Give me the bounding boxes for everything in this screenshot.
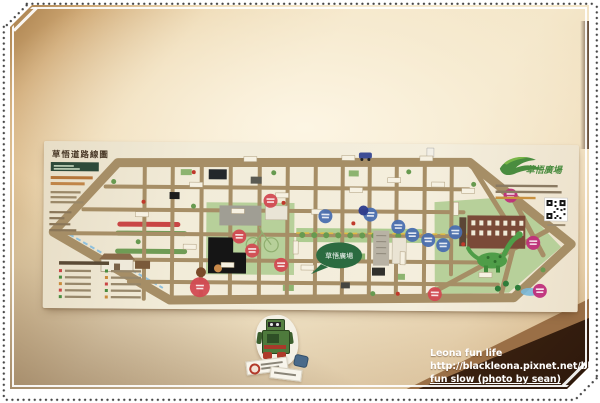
sticker-tag (269, 366, 302, 382)
poi-marker-red (263, 194, 277, 208)
wall-photo: 草悟廣場 草悟道路線圖 (10, 5, 589, 389)
robot-panel (267, 334, 279, 343)
poi-marker-blue (405, 228, 419, 242)
poi-marker-blue (436, 238, 450, 252)
poi-marker-blue (391, 220, 405, 234)
brand-name: 草悟廣場 (526, 165, 564, 176)
photo-mat: 草悟廣場 草悟道路線圖 (0, 0, 600, 403)
poi-marker-navy (358, 205, 368, 215)
map-title-block: 草悟道路線圖 (49, 149, 109, 232)
poi-marker-blue (448, 225, 462, 239)
map-title: 草悟道路線圖 (52, 149, 109, 160)
doorway-shadow (580, 21, 589, 149)
poi-marker-red (232, 229, 246, 243)
dotted-border-right (594, 4, 599, 379)
plaza-bubble-label: 草悟廣場 (325, 251, 353, 260)
robot-band (264, 345, 286, 349)
robot-sticker (244, 315, 316, 387)
poi-marker-magenta (526, 236, 540, 250)
dotted-border-left (1, 24, 6, 399)
plaza-bubble: 草悟廣場 (311, 242, 362, 274)
poi-marker-red (274, 258, 288, 272)
red-ring-logo (249, 363, 261, 375)
poi-marker-red (428, 287, 442, 301)
poi-marker-blue (318, 209, 332, 223)
poi-marker-red (190, 277, 210, 297)
robot-eye (276, 323, 279, 326)
map-poster: 草悟廣場 草悟道路線圖 (43, 141, 579, 312)
poi-marker-blue (421, 233, 435, 247)
poi-marker-magenta (533, 284, 547, 298)
watermark-line1: Leona fun life (430, 347, 600, 360)
blue-figurine (293, 354, 309, 369)
poi-marker-red (245, 244, 259, 258)
dotted-border-bottom (4, 397, 576, 402)
robot-eye (270, 323, 273, 326)
watermark: Leona fun life http://blackleona.pixnet.… (430, 347, 600, 386)
map-illustration: 草悟廣場 草悟道路線圖 (43, 141, 579, 312)
